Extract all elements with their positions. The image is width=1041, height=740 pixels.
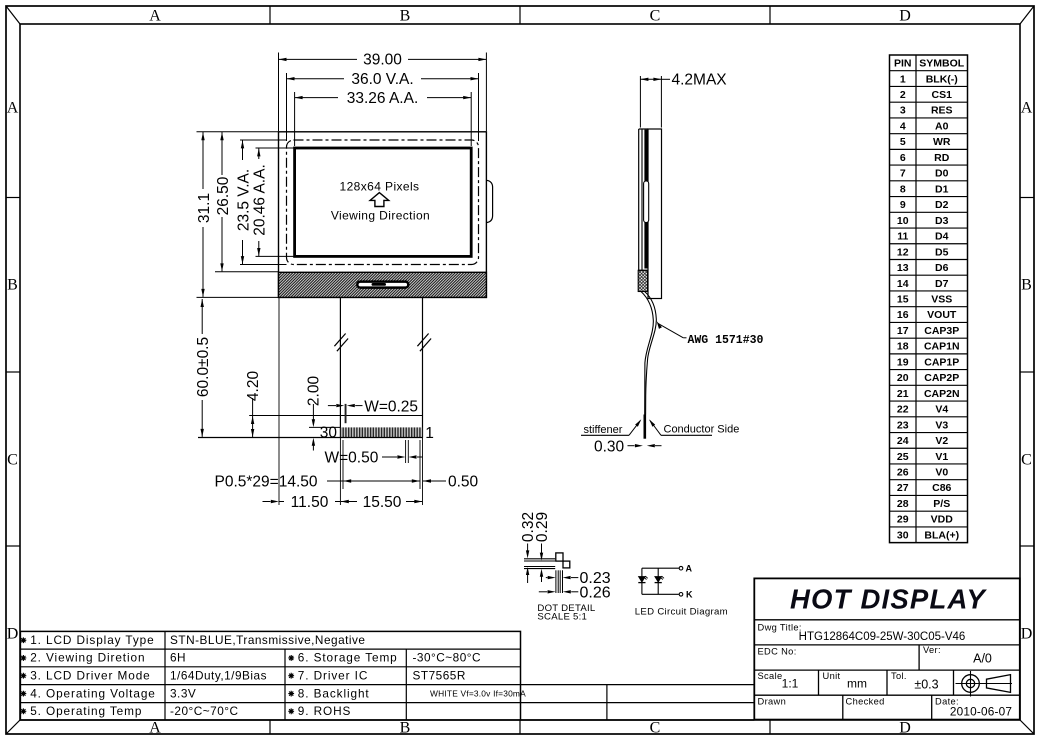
svg-text:15: 15 <box>897 293 909 305</box>
svg-text:39.00: 39.00 <box>363 52 402 69</box>
svg-text:20.46 A.A.: 20.46 A.A. <box>252 164 269 236</box>
svg-text:16: 16 <box>897 309 909 321</box>
svg-text:V4: V4 <box>935 404 948 416</box>
svg-text:4: 4 <box>900 120 906 132</box>
svg-text:-20°C~70°C: -20°C~70°C <box>170 704 239 718</box>
svg-text:1: 1 <box>425 425 434 442</box>
svg-text:12: 12 <box>897 246 909 258</box>
svg-text:4. Operating Voltage: 4. Operating Voltage <box>30 686 156 700</box>
svg-text:C: C <box>7 452 18 469</box>
svg-text:B: B <box>7 277 18 294</box>
svg-text:28: 28 <box>897 498 909 510</box>
svg-text:9. ROHS: 9. ROHS <box>298 704 352 718</box>
svg-text:2. Viewing Diretion: 2. Viewing Diretion <box>30 651 145 665</box>
svg-text:HOT DISPLAY: HOT DISPLAY <box>790 584 987 615</box>
svg-text:26: 26 <box>897 467 909 479</box>
svg-text:33.26 A.A.: 33.26 A.A. <box>347 90 419 107</box>
svg-text:Ver:: Ver: <box>923 645 941 655</box>
svg-text:15.50: 15.50 <box>363 494 402 511</box>
svg-text:WR: WR <box>933 136 951 148</box>
svg-text:5: 5 <box>900 136 906 148</box>
svg-text:Viewing Direction: Viewing Direction <box>331 208 430 222</box>
svg-text:4.20: 4.20 <box>245 371 262 402</box>
svg-text:A0: A0 <box>935 120 949 132</box>
svg-text:1: 1 <box>900 73 906 85</box>
svg-text:2: 2 <box>900 89 906 101</box>
svg-text:VOUT: VOUT <box>927 309 957 321</box>
svg-text:D6: D6 <box>935 262 949 274</box>
svg-text:RES: RES <box>931 105 953 117</box>
svg-text:Drawn: Drawn <box>758 696 787 706</box>
svg-text:BLA(+): BLA(+) <box>924 529 959 541</box>
svg-text:D4: D4 <box>935 231 949 243</box>
svg-text:P0.5*29=14.50: P0.5*29=14.50 <box>215 473 318 490</box>
svg-text:CS1: CS1 <box>932 89 953 101</box>
svg-text:mm: mm <box>847 677 867 691</box>
svg-text:SYMBOL: SYMBOL <box>919 58 965 70</box>
svg-text:1:1: 1:1 <box>782 677 799 691</box>
svg-text:7: 7 <box>900 168 906 180</box>
svg-text:31.1: 31.1 <box>196 193 213 223</box>
svg-text:CAP1P: CAP1P <box>924 356 959 368</box>
svg-text:9: 9 <box>900 199 906 211</box>
svg-text:-30°C~80°C: -30°C~80°C <box>413 651 482 665</box>
svg-text:A: A <box>149 720 161 737</box>
svg-text:A: A <box>7 100 19 117</box>
svg-text:D: D <box>7 626 19 643</box>
svg-text:25: 25 <box>897 451 909 463</box>
svg-text:30: 30 <box>320 425 338 442</box>
svg-text:C: C <box>1021 452 1032 469</box>
svg-text:10: 10 <box>897 215 909 227</box>
svg-text:A/0: A/0 <box>973 652 992 666</box>
svg-text:1. LCD Display Type: 1. LCD Display Type <box>30 633 154 647</box>
svg-text:C: C <box>650 720 661 737</box>
svg-text:A: A <box>149 8 161 25</box>
svg-text:V2: V2 <box>935 435 948 447</box>
svg-text:A: A <box>1021 100 1033 117</box>
svg-text:29: 29 <box>897 514 909 526</box>
svg-text:B: B <box>1021 277 1032 294</box>
svg-text:6. Storage Temp: 6. Storage Temp <box>298 651 398 665</box>
svg-text:Dwg Title:: Dwg Title: <box>758 622 802 632</box>
svg-text:VDD: VDD <box>931 514 954 526</box>
svg-text:2010-06-07: 2010-06-07 <box>950 704 1012 718</box>
svg-text:D: D <box>1021 626 1033 643</box>
svg-text:21: 21 <box>897 388 909 400</box>
svg-text:0.29: 0.29 <box>534 512 551 542</box>
svg-text:8. Backlight: 8. Backlight <box>298 686 370 700</box>
svg-text:11: 11 <box>897 231 908 243</box>
svg-text:SCALE 5:1: SCALE 5:1 <box>537 612 587 623</box>
svg-text:B: B <box>400 8 411 25</box>
svg-text:ST7565R: ST7565R <box>413 668 466 682</box>
svg-text:±0.3: ±0.3 <box>914 678 938 692</box>
svg-text:Unit: Unit <box>823 671 841 681</box>
svg-text:C: C <box>650 8 661 25</box>
svg-text:WHITE Vf=3.0v If=30mA: WHITE Vf=3.0v If=30mA <box>430 688 526 698</box>
svg-text:128x64 Pixels: 128x64 Pixels <box>340 179 420 193</box>
svg-text:CAP2N: CAP2N <box>924 388 960 400</box>
svg-text:3.3V: 3.3V <box>170 686 196 700</box>
svg-text:1/64Duty,1/9Bias: 1/64Duty,1/9Bias <box>170 668 267 682</box>
svg-text:D3: D3 <box>935 215 949 227</box>
svg-text:Conductor Side: Conductor Side <box>664 424 740 436</box>
svg-text:STN-BLUE,Transmissive,Negative: STN-BLUE,Transmissive,Negative <box>170 633 366 647</box>
svg-text:0.30: 0.30 <box>594 439 625 456</box>
svg-text:27: 27 <box>897 482 909 494</box>
svg-text:Scale: Scale <box>758 671 783 681</box>
svg-text:8: 8 <box>900 183 906 195</box>
svg-text:20: 20 <box>897 372 909 384</box>
svg-text:26.50: 26.50 <box>215 176 232 215</box>
svg-text:V1: V1 <box>935 451 948 463</box>
svg-text:4.2MAX: 4.2MAX <box>672 72 728 89</box>
svg-text:P/S: P/S <box>933 498 950 510</box>
svg-text:6: 6 <box>900 152 906 164</box>
svg-text:D2: D2 <box>935 199 949 211</box>
svg-text:V3: V3 <box>935 419 948 431</box>
svg-text:D: D <box>899 720 911 737</box>
svg-text:B: B <box>400 720 411 737</box>
svg-text:18: 18 <box>897 341 909 353</box>
svg-text:D5: D5 <box>935 246 949 258</box>
svg-text:Checked: Checked <box>846 696 885 706</box>
svg-text:3: 3 <box>900 105 906 117</box>
svg-text:36.0 V.A.: 36.0 V.A. <box>351 71 413 88</box>
svg-text:W=0.50: W=0.50 <box>325 449 379 466</box>
svg-text:23.5 V.A.: 23.5 V.A. <box>235 169 252 231</box>
svg-text:AWG 1571#30: AWG 1571#30 <box>688 334 764 347</box>
svg-text:RD: RD <box>934 152 950 164</box>
svg-text:3. LCD Driver Mode: 3. LCD Driver Mode <box>30 668 150 682</box>
svg-text:LED Circuit Diagram: LED Circuit Diagram <box>635 606 728 617</box>
svg-text:C86: C86 <box>932 482 951 494</box>
svg-text:A: A <box>686 563 693 573</box>
svg-text:VSS: VSS <box>931 293 952 305</box>
svg-text:14: 14 <box>897 278 909 290</box>
svg-text:30: 30 <box>897 529 909 541</box>
svg-text:PIN: PIN <box>894 58 912 70</box>
svg-text:0.26: 0.26 <box>580 584 611 601</box>
svg-text:6H: 6H <box>170 651 186 665</box>
svg-text:K: K <box>686 589 693 599</box>
svg-text:CAP1N: CAP1N <box>924 341 960 353</box>
svg-text:11.50: 11.50 <box>291 494 329 511</box>
svg-text:5. Operating Temp: 5. Operating Temp <box>30 704 142 718</box>
svg-text:stiffener: stiffener <box>584 424 623 436</box>
svg-text:22: 22 <box>897 404 909 416</box>
svg-text:EDC No:: EDC No: <box>758 646 797 656</box>
svg-text:HTG12864C09-25W-30C05-V46: HTG12864C09-25W-30C05-V46 <box>799 631 966 643</box>
svg-text:Tol.: Tol. <box>891 671 907 681</box>
svg-text:23: 23 <box>897 419 909 431</box>
svg-text:D0: D0 <box>935 168 949 180</box>
svg-text:17: 17 <box>897 325 909 337</box>
svg-text:2.00: 2.00 <box>306 376 323 407</box>
svg-text:13: 13 <box>897 262 909 274</box>
svg-text:7. Driver IC: 7. Driver IC <box>298 668 368 682</box>
svg-text:D7: D7 <box>935 278 949 290</box>
svg-text:D1: D1 <box>935 183 949 195</box>
svg-text:BLK(-): BLK(-) <box>926 73 958 85</box>
svg-text:0.50: 0.50 <box>448 473 479 490</box>
svg-text:24: 24 <box>897 435 909 447</box>
svg-text:CAP3P: CAP3P <box>924 325 959 337</box>
svg-text:D: D <box>899 8 911 25</box>
svg-text:W=0.25: W=0.25 <box>364 398 418 415</box>
svg-text:CAP2P: CAP2P <box>924 372 959 384</box>
svg-text:60.0±0.5: 60.0±0.5 <box>195 337 212 397</box>
svg-text:19: 19 <box>897 356 909 368</box>
svg-text:V0: V0 <box>935 467 948 479</box>
